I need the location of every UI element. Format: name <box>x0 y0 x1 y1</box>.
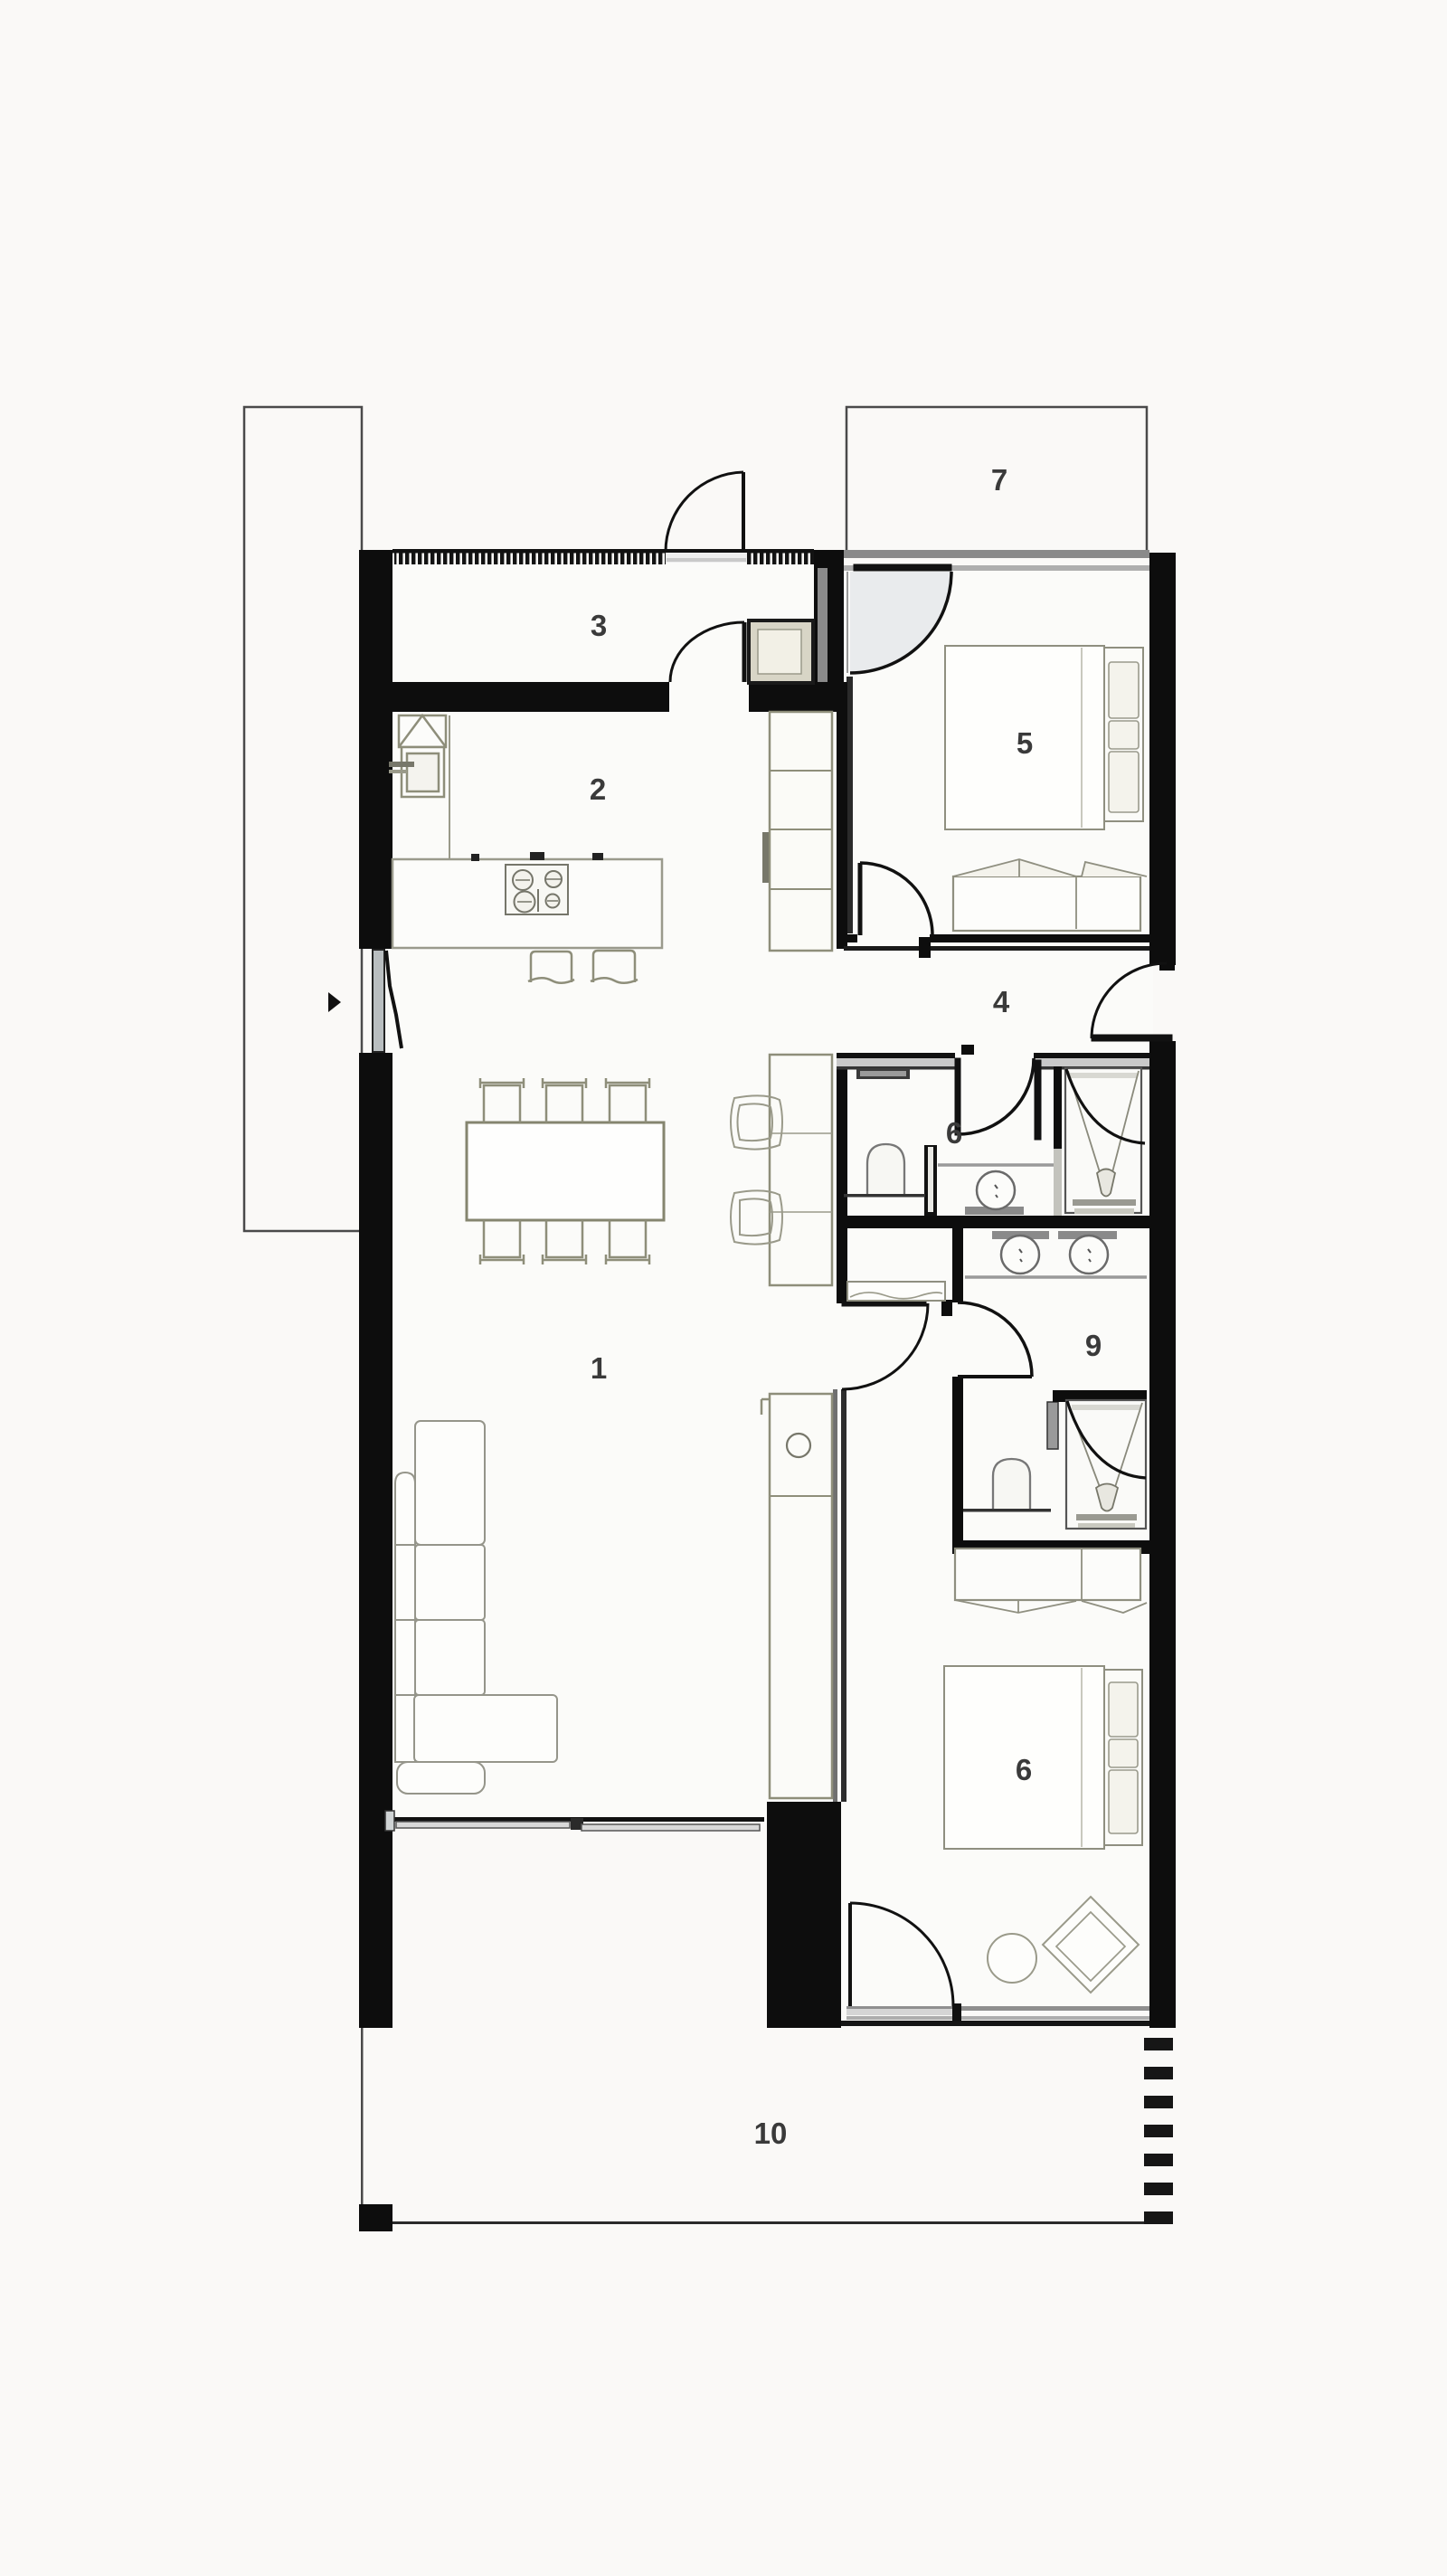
svg-text:7: 7 <box>991 463 1007 497</box>
svg-text:1: 1 <box>591 1351 607 1385</box>
svg-text:10: 10 <box>754 2117 788 2150</box>
svg-text:9: 9 <box>1085 1329 1102 1362</box>
svg-text:2: 2 <box>590 772 606 806</box>
svg-text:3: 3 <box>591 609 607 642</box>
svg-text:6: 6 <box>946 1116 962 1150</box>
svg-text:5: 5 <box>1017 726 1033 760</box>
svg-text:6: 6 <box>1016 1753 1032 1786</box>
svg-text:4: 4 <box>993 985 1010 1018</box>
